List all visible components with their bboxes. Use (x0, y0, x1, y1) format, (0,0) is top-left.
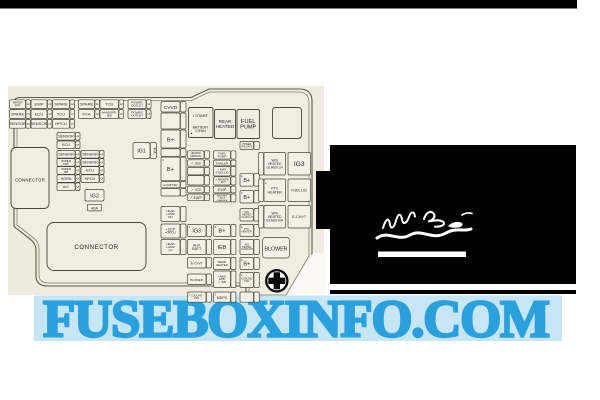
svg-text:5: 5 (70, 103, 74, 105)
svg-text:BLOWER: BLOWER (265, 246, 288, 252)
svg-text:BATT: BATT (192, 247, 202, 251)
svg-text:✓ ECU: ✓ ECU (218, 181, 226, 184)
svg-text:OUTLET: OUTLET (131, 114, 143, 118)
svg-text:5: 5 (100, 161, 104, 163)
svg-text:LH: LH (169, 248, 173, 252)
svg-text:GLASS RH: GLASS RH (241, 248, 253, 251)
svg-text:5: 5 (76, 144, 80, 146)
svg-text:E-CVVT: E-CVVT (191, 261, 203, 265)
svg-text:IEB: IEB (107, 114, 112, 118)
svg-text:GLASS LH: GLASS LH (241, 216, 253, 219)
svg-text:B+: B+ (243, 195, 250, 201)
svg-text:5: 5 (76, 153, 80, 155)
svg-text:SENSOR: SENSOR (82, 153, 98, 157)
svg-text:SENSOR: SENSOR (58, 153, 74, 157)
svg-text:✓ EWP: ✓ EWP (190, 196, 203, 200)
svg-text:IG3: IG3 (294, 161, 305, 168)
svg-text:▲: ▲ (190, 131, 193, 135)
svg-text:MIRROR: MIRROR (190, 154, 201, 158)
svg-text:C/FAN: C/FAN (195, 129, 206, 133)
svg-text:5: 5 (26, 103, 30, 105)
svg-text:MDPS: MDPS (217, 296, 228, 300)
svg-text:SENSOR: SENSOR (9, 121, 26, 126)
svg-text:• START: • START (193, 113, 209, 118)
svg-text:FRT: FRT (15, 104, 21, 108)
svg-text:5: 5 (95, 113, 99, 115)
svg-text:✓ IG3: ✓ IG3 (191, 162, 201, 166)
svg-text:HORN: HORN (61, 177, 72, 181)
svg-text:HEATED: HEATED (216, 124, 235, 129)
svg-text:5: 5 (76, 178, 80, 180)
svg-text:PUMP: PUMP (218, 154, 227, 158)
svg-text:✓ IG3: ✓ IG3 (191, 188, 201, 192)
svg-text:CVVD: CVVD (164, 105, 178, 111)
svg-text:EWP: EWP (34, 102, 43, 107)
svg-text:5: 5 (26, 123, 30, 125)
svg-text:IG2: IG2 (90, 194, 99, 200)
svg-text:ECU: ECU (86, 169, 94, 173)
svg-text:5: 5 (147, 113, 151, 115)
svg-text:B+: B+ (243, 262, 250, 268)
svg-text:5: 5 (76, 186, 80, 188)
svg-text:5: 5 (100, 170, 104, 172)
svg-text:40A: 40A (91, 205, 98, 210)
svg-text:FRT: FRT (63, 162, 69, 166)
svg-text:TCU: TCU (57, 111, 65, 116)
svg-text:5: 5 (147, 103, 151, 105)
svg-text:•FUEL LID: •FUEL LID (215, 171, 228, 175)
svg-text:ECU: ECU (62, 143, 70, 147)
svg-text:5: 5 (95, 103, 99, 105)
svg-text:IG1: IG1 (137, 149, 145, 155)
svg-text:5: 5 (48, 123, 52, 125)
svg-text:5: 5 (76, 161, 80, 163)
svg-text:5: 5 (26, 113, 30, 115)
svg-text:FAN: FAN (194, 297, 199, 300)
svg-text:FUSEBOXINFO.COM: FUSEBOXINFO.COM (43, 291, 550, 349)
svg-text:GLASS RH: GLASS RH (266, 218, 284, 222)
svg-text:SPARE: SPARE (54, 102, 68, 107)
svg-text:CONNECTOR: CONNECTOR (15, 178, 45, 183)
svg-text:5: 5 (76, 170, 80, 172)
svg-text:HEATER: HEATER (268, 190, 283, 194)
svg-text:•OPCU: •OPCU (165, 231, 176, 235)
svg-text:HEATED: HEATED (216, 263, 229, 267)
svg-text:SENSOR: SENSOR (82, 161, 98, 165)
svg-text:SENSOR: SENSOR (58, 135, 74, 139)
svg-text:TAILGATE: TAILGATE (241, 146, 253, 149)
svg-text:OUTLET: OUTLET (131, 104, 143, 108)
svg-text:5: 5 (70, 113, 74, 115)
svg-text:B+: B+ (167, 167, 175, 173)
svg-text:CHARGER: CHARGER (217, 199, 228, 202)
svg-text:HEATER: HEATER (242, 230, 252, 234)
svg-text:CONNECTOR: CONNECTOR (74, 244, 118, 251)
svg-text:✓ IEB: ✓ IEB (218, 280, 226, 284)
svg-text:IEB: IEB (218, 245, 227, 251)
svg-text:A/C: A/C (63, 185, 69, 189)
svg-text:PUMP: PUMP (240, 125, 256, 131)
svg-text:TCU: TCU (105, 102, 113, 107)
svg-text:5: 5 (119, 103, 123, 105)
svg-text:FUEL LID: FUEL LID (291, 189, 307, 193)
svg-text:RH: RH (168, 215, 172, 219)
svg-text:E-CVVT: E-CVVT (292, 215, 307, 219)
svg-text:5: 5 (70, 123, 74, 125)
svg-text:5: 5 (100, 153, 104, 155)
svg-text:IG3: IG3 (192, 229, 201, 235)
svg-text:5: 5 (48, 113, 52, 115)
svg-text:B+: B+ (243, 178, 250, 184)
svg-text:SPARE: SPARE (11, 111, 25, 116)
svg-text:5: 5 (76, 135, 80, 137)
svg-text:5: 5 (48, 103, 52, 105)
svg-text:HPCU: HPCU (55, 121, 66, 126)
svg-text:FAN: FAN (244, 280, 249, 283)
svg-text:ECU: ECU (35, 111, 44, 116)
svg-text:GLASS LH: GLASS LH (266, 165, 283, 169)
svg-text:40A: 40A (152, 147, 156, 154)
svg-text:FCA: FCA (83, 111, 91, 116)
svg-text:E-SHIFTER: E-SHIFTER (164, 183, 178, 187)
svg-text:5: 5 (119, 113, 123, 115)
svg-text:TRAILER: TRAILER (216, 161, 230, 165)
svg-text:SENSOR: SENSOR (31, 121, 48, 126)
svg-text:5: 5 (100, 178, 104, 180)
svg-text:B+: B+ (167, 138, 175, 144)
svg-text:B+: B+ (219, 229, 226, 235)
svg-text:SPARE: SPARE (80, 102, 94, 107)
svg-text:HPCU: HPCU (85, 177, 96, 181)
svg-text:EWP: EWP (218, 188, 227, 192)
svg-text:BLOWER: BLOWER (190, 278, 203, 282)
